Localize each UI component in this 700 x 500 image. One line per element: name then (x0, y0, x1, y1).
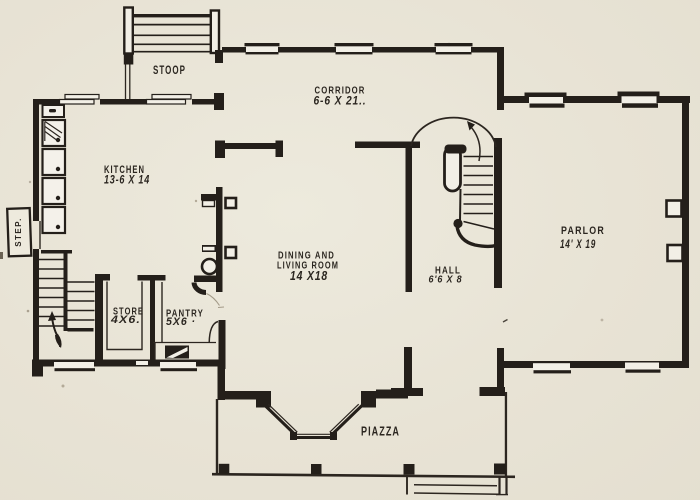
svg-text:6'6 X 8: 6'6 X 8 (429, 274, 463, 286)
svg-text:4X6.: 4X6. (110, 314, 141, 326)
svg-text:STEP.: STEP. (14, 217, 23, 247)
svg-text:STOOP: STOOP (153, 65, 186, 77)
svg-text:13-6 X 14: 13-6 X 14 (104, 173, 150, 187)
svg-text:PIAZZA: PIAZZA (361, 424, 400, 439)
svg-text:14' X 19: 14' X 19 (560, 239, 596, 251)
svg-text:14 X18: 14 X18 (290, 269, 328, 283)
svg-text:6-6 X 21..: 6-6 X 21.. (314, 94, 367, 108)
svg-text:5X6 ·: 5X6 · (166, 316, 196, 328)
svg-text:PARLOR: PARLOR (561, 225, 605, 237)
